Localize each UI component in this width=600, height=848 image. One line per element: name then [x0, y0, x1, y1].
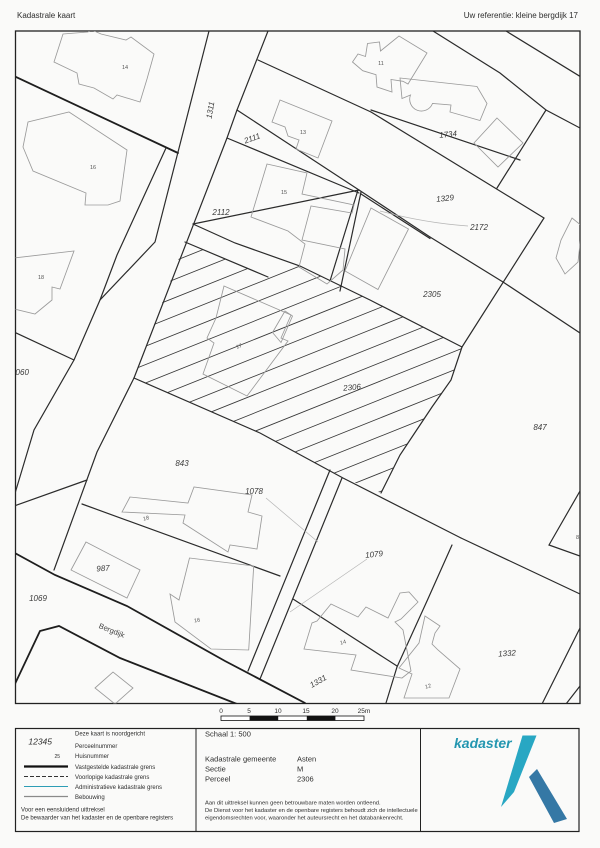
svg-text:1332: 1332 — [498, 648, 517, 658]
svg-text:Schaal 1: 500: Schaal 1: 500 — [205, 730, 251, 739]
svg-text:1734: 1734 — [439, 129, 458, 140]
svg-text:25: 25 — [54, 754, 60, 760]
svg-text:10: 10 — [274, 708, 282, 715]
svg-text:1078: 1078 — [245, 487, 263, 496]
svg-text:847: 847 — [533, 423, 547, 432]
svg-text:1079: 1079 — [365, 549, 384, 560]
svg-text:Vastgestelde kadastrale grens: Vastgestelde kadastrale grens — [75, 765, 155, 771]
svg-text:2306: 2306 — [342, 382, 362, 393]
svg-text:1069: 1069 — [29, 594, 47, 603]
svg-text:13: 13 — [300, 130, 306, 136]
svg-text:16: 16 — [194, 617, 201, 624]
svg-text:14: 14 — [122, 65, 128, 71]
svg-text:Asten: Asten — [297, 755, 316, 764]
svg-text:De Dienst voor het kadaster en: De Dienst voor het kadaster en de openba… — [205, 808, 418, 814]
svg-text:987: 987 — [96, 564, 110, 574]
svg-text:843: 843 — [175, 459, 189, 468]
svg-text:18: 18 — [38, 275, 44, 281]
svg-text:Voorlopige kadastrale grens: Voorlopige kadastrale grens — [75, 775, 149, 781]
svg-text:11: 11 — [378, 61, 384, 67]
svg-text:20: 20 — [331, 708, 339, 715]
svg-text:5: 5 — [247, 708, 251, 715]
svg-text:2172: 2172 — [469, 223, 488, 232]
svg-text:Administratieve kadastrale gre: Administratieve kadastrale grens — [75, 785, 162, 791]
svg-text:25m: 25m — [358, 708, 371, 715]
svg-text:15: 15 — [302, 708, 310, 715]
svg-text:Kadastrale gemeente: Kadastrale gemeente — [205, 755, 276, 764]
svg-text:Voor een eensluidend uittrekse: Voor een eensluidend uittreksel — [21, 808, 105, 814]
svg-text:M: M — [297, 765, 303, 774]
svg-text:Perceel: Perceel — [205, 775, 231, 784]
svg-text:12345: 12345 — [28, 737, 52, 747]
svg-text:kadaster: kadaster — [454, 735, 513, 751]
svg-text:Bebouwing: Bebouwing — [75, 795, 105, 801]
svg-text:0: 0 — [219, 708, 223, 715]
svg-text:Sectie: Sectie — [205, 765, 226, 774]
svg-text:16: 16 — [90, 165, 96, 171]
svg-text:2112: 2112 — [211, 208, 230, 217]
svg-text:De bewaarder van het kadaster: De bewaarder van het kadaster en de open… — [21, 816, 173, 822]
svg-text:Uw referentie: kleine bergdijk: Uw referentie: kleine bergdijk 17 — [464, 11, 579, 20]
svg-text:Huisnummer: Huisnummer — [75, 754, 109, 760]
svg-text:2306: 2306 — [297, 775, 314, 784]
svg-text:eigendomsrechten voor, waarond: eigendomsrechten voor, waaronder het aut… — [205, 816, 404, 822]
svg-text:Kadastrale kaart: Kadastrale kaart — [17, 11, 76, 20]
svg-text:Aan dit uittreksel kunnen geen: Aan dit uittreksel kunnen geen betrouwba… — [205, 801, 381, 807]
svg-text:Deze kaart is noordgericht: Deze kaart is noordgericht — [75, 732, 145, 738]
svg-text:2305: 2305 — [422, 290, 441, 299]
svg-text:15: 15 — [281, 190, 287, 196]
svg-text:1329: 1329 — [436, 193, 455, 204]
svg-text:Perceelnummer: Perceelnummer — [75, 744, 117, 750]
